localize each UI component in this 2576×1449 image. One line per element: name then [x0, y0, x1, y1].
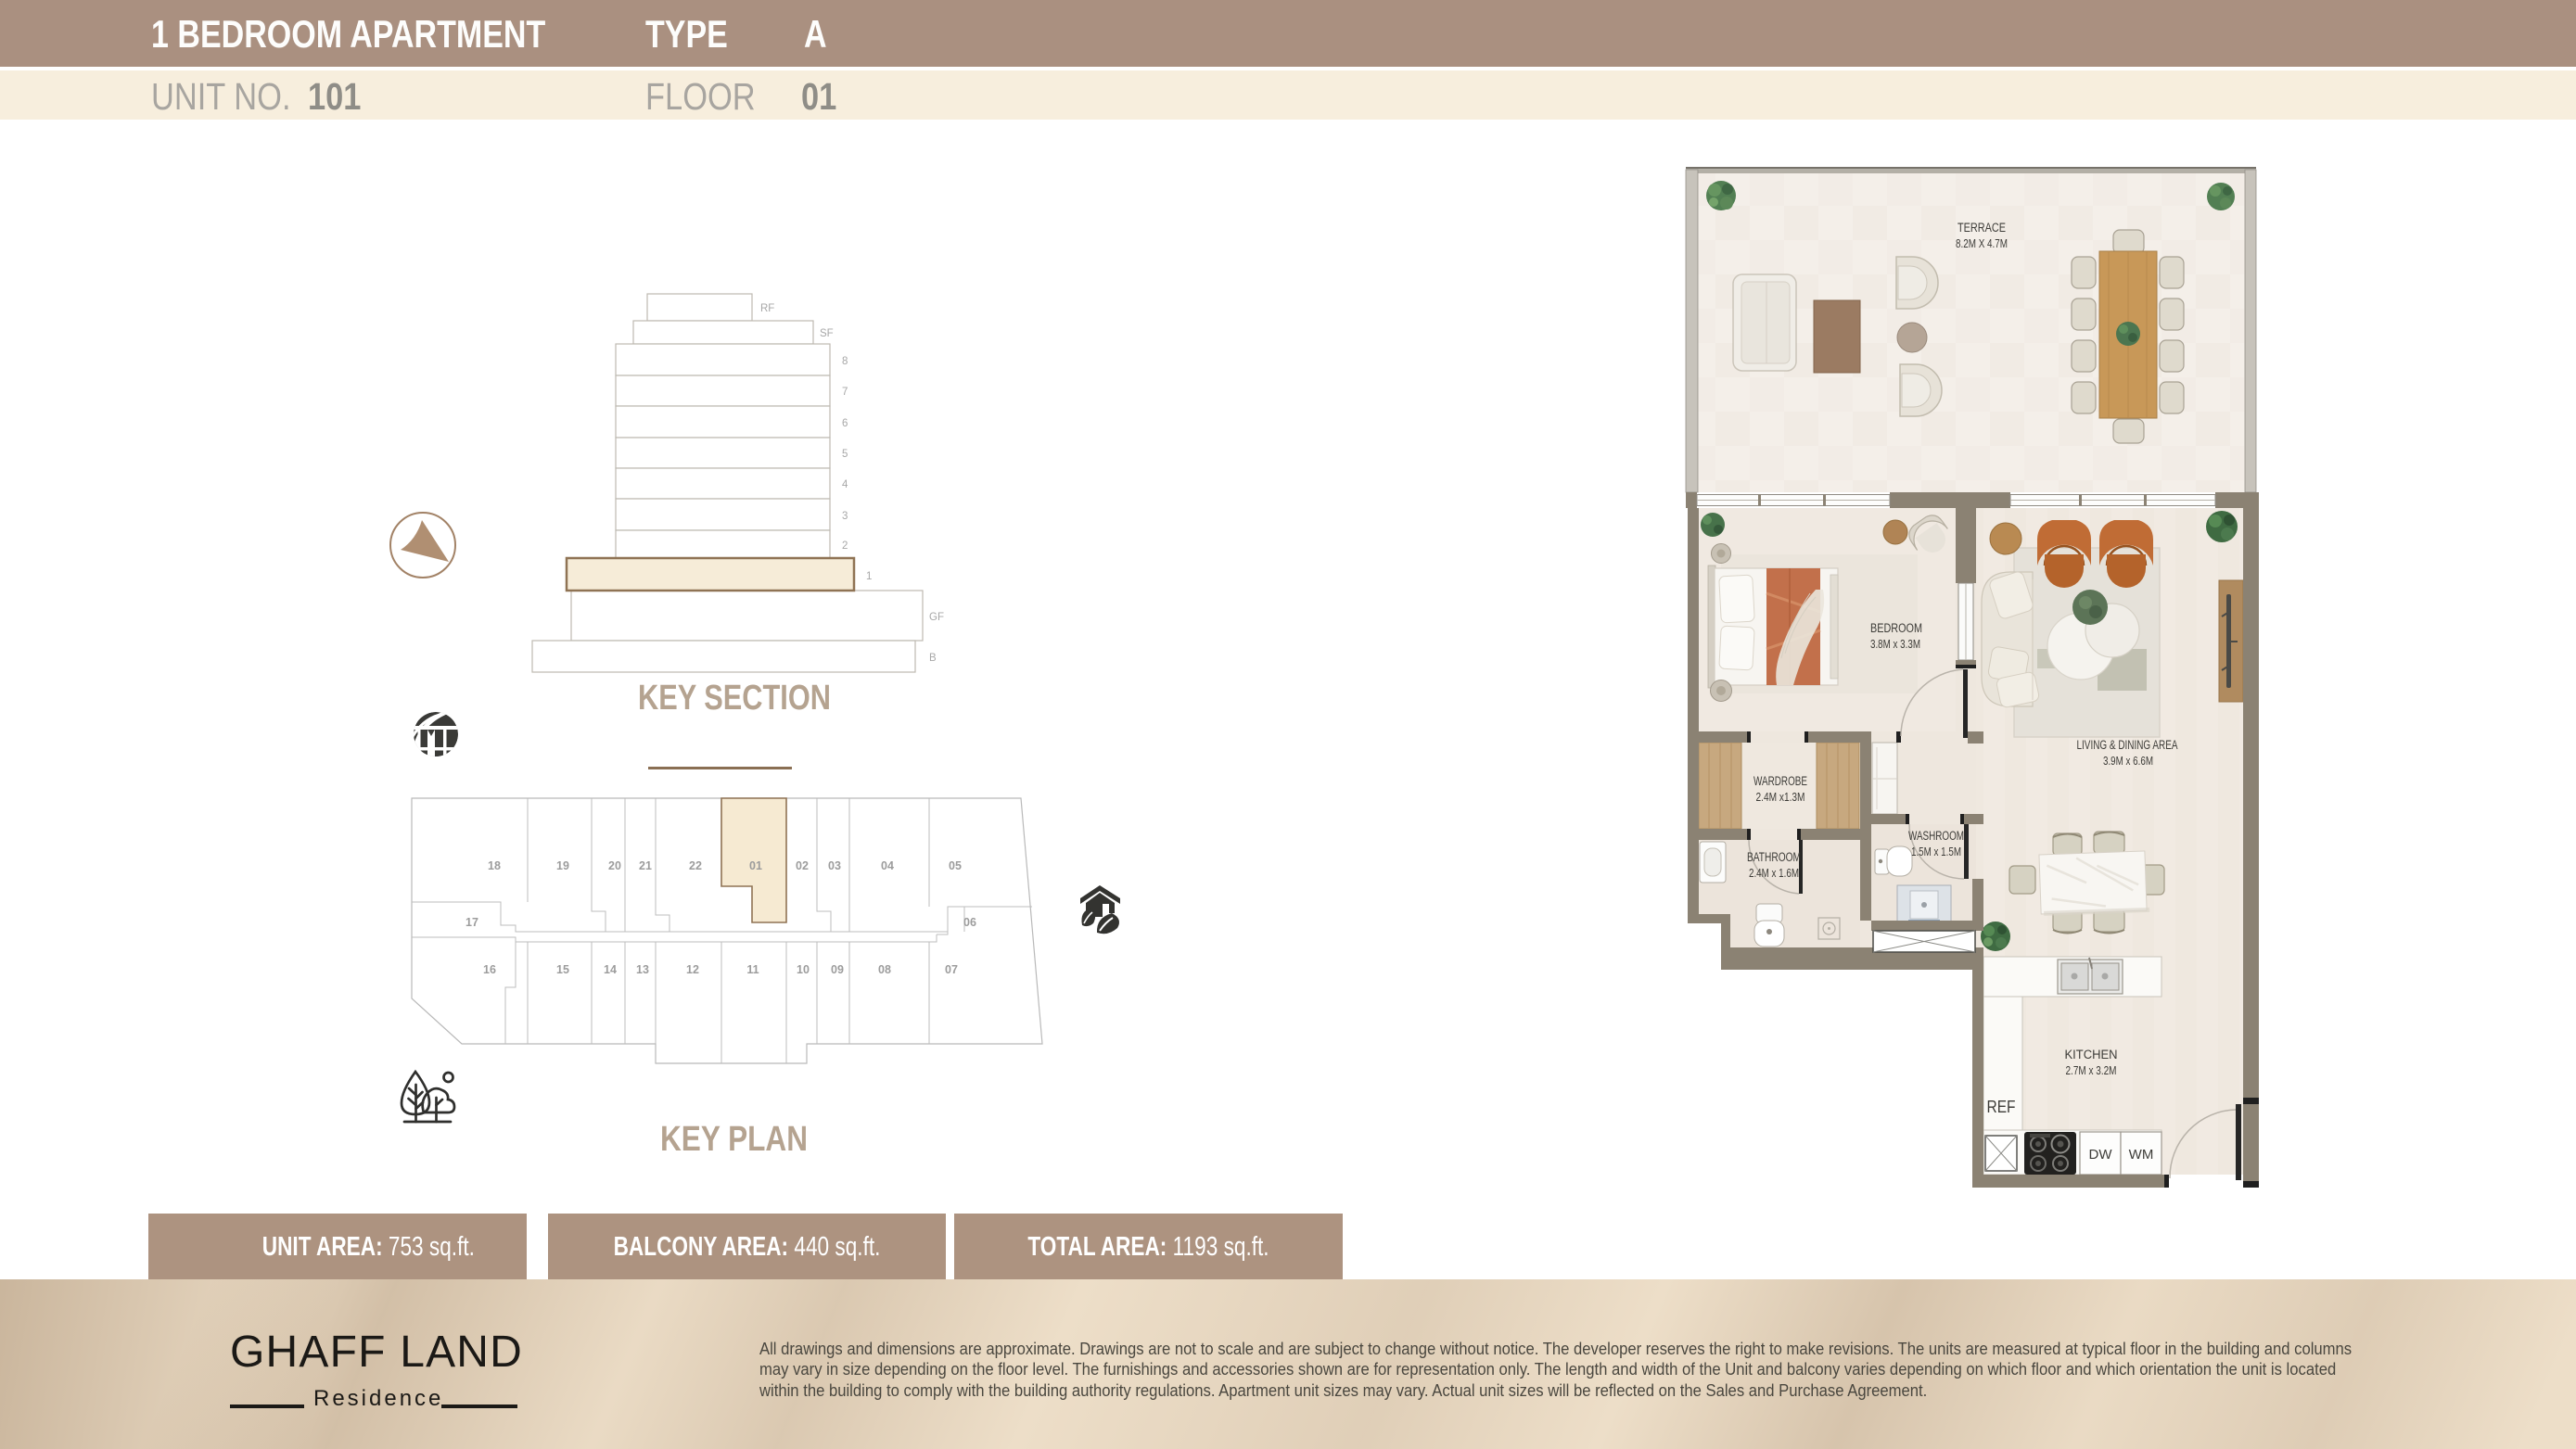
svg-text:REF: REF: [1987, 1098, 2016, 1116]
svg-text:2.7M x 3.2M: 2.7M x 3.2M: [2066, 1063, 2117, 1077]
svg-text:5: 5: [842, 449, 848, 460]
svg-text:BEDROOM: BEDROOM: [1870, 621, 1922, 635]
svg-text:20: 20: [608, 859, 621, 872]
svg-text:3.9M x 6.6M: 3.9M x 6.6M: [2103, 754, 2153, 768]
svg-text:6: 6: [842, 418, 848, 429]
svg-text:BATHROOM: BATHROOM: [1747, 850, 1801, 864]
svg-text:18: 18: [488, 859, 501, 872]
svg-text:4: 4: [842, 479, 848, 490]
svg-text:02: 02: [796, 859, 809, 872]
svg-text:RF: RF: [760, 303, 774, 314]
svg-text:2.4M x 1.6M: 2.4M x 1.6M: [1749, 866, 1799, 880]
svg-text:SF: SF: [820, 328, 834, 339]
svg-text:03: 03: [828, 859, 841, 872]
svg-text:01: 01: [749, 859, 762, 872]
svg-text:2: 2: [842, 540, 848, 552]
svg-text:16: 16: [483, 963, 496, 976]
svg-text:8.2M X 4.7M: 8.2M X 4.7M: [1956, 236, 2008, 250]
svg-text:15: 15: [556, 963, 569, 976]
svg-text:3: 3: [842, 511, 848, 522]
svg-text:14: 14: [604, 963, 617, 976]
svg-text:12: 12: [686, 963, 699, 976]
svg-text:KEY PLAN: KEY PLAN: [660, 1120, 808, 1159]
svg-text:22: 22: [689, 859, 702, 872]
svg-text:8: 8: [842, 356, 848, 367]
svg-text:GF: GF: [929, 612, 944, 623]
svg-text:3.8M x 3.3M: 3.8M x 3.3M: [1870, 637, 1920, 651]
svg-text:17: 17: [465, 916, 478, 929]
svg-text:WASHROOM: WASHROOM: [1908, 829, 1964, 843]
svg-text:KITCHEN: KITCHEN: [2065, 1048, 2118, 1061]
svg-text:08: 08: [878, 963, 891, 976]
svg-text:19: 19: [556, 859, 569, 872]
svg-text:21: 21: [639, 859, 652, 872]
svg-text:WM: WM: [2129, 1147, 2154, 1163]
svg-text:DW: DW: [2089, 1147, 2113, 1163]
svg-text:WARDROBE: WARDROBE: [1753, 774, 1807, 788]
svg-text:04: 04: [881, 859, 894, 872]
svg-text:7: 7: [842, 387, 848, 398]
svg-text:07: 07: [945, 963, 958, 976]
svg-text:10: 10: [797, 963, 810, 976]
svg-text:TERRACE: TERRACE: [1958, 221, 2006, 235]
svg-text:06: 06: [963, 916, 976, 929]
svg-text:09: 09: [831, 963, 844, 976]
svg-text:B: B: [929, 653, 937, 664]
svg-text:11: 11: [746, 963, 759, 976]
svg-text:05: 05: [949, 859, 962, 872]
svg-text:KEY SECTION: KEY SECTION: [638, 679, 831, 718]
svg-text:1.5M x 1.5M: 1.5M x 1.5M: [1911, 845, 1961, 858]
svg-text:LIVING & DINING AREA: LIVING & DINING AREA: [2077, 738, 2178, 752]
svg-text:2.4M x1.3M: 2.4M x1.3M: [1756, 790, 1805, 804]
svg-text:13: 13: [636, 963, 649, 976]
svg-text:1: 1: [866, 571, 872, 582]
